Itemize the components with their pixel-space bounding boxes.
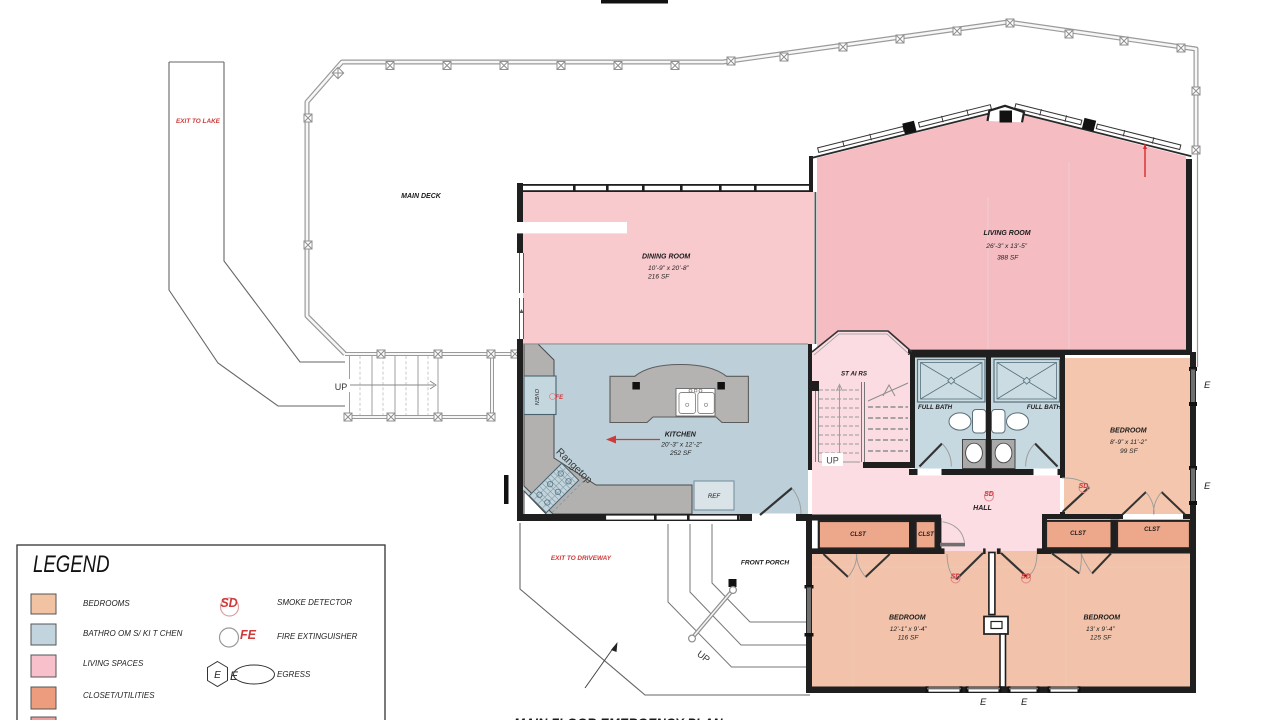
svg-text:BEDROOM: BEDROOM bbox=[1110, 427, 1147, 434]
svg-text:BEDROOM: BEDROOM bbox=[1084, 614, 1121, 621]
svg-text:E: E bbox=[1021, 697, 1028, 708]
svg-text:10’-9” x 20’-8”: 10’-9” x 20’-8” bbox=[648, 265, 689, 272]
svg-text:E: E bbox=[1204, 481, 1211, 492]
svg-text:SD: SD bbox=[951, 574, 961, 581]
svg-text:116 SF: 116 SF bbox=[898, 634, 920, 641]
svg-text:216 SF: 216 SF bbox=[647, 274, 670, 281]
svg-text:LIVING SPACES: LIVING SPACES bbox=[83, 659, 144, 668]
svg-text:E: E bbox=[214, 670, 221, 681]
svg-text:DINING ROOM: DINING ROOM bbox=[642, 254, 690, 261]
svg-text:KITCHEN: KITCHEN bbox=[665, 431, 697, 438]
svg-text:SD: SD bbox=[984, 491, 994, 498]
svg-text:UP: UP bbox=[335, 382, 348, 392]
svg-text:252 SF: 252 SF bbox=[669, 450, 692, 457]
svg-text:BATHRO OM S/ KI T CHEN: BATHRO OM S/ KI T CHEN bbox=[83, 629, 183, 638]
svg-text:HALL: HALL bbox=[973, 505, 992, 512]
svg-text:EGRESS: EGRESS bbox=[277, 670, 311, 679]
svg-text:SMOKE DETECTOR: SMOKE DETECTOR bbox=[277, 598, 352, 607]
svg-text:CLST: CLST bbox=[1070, 531, 1087, 537]
svg-text:FRONT PORCH: FRONT PORCH bbox=[741, 560, 790, 567]
svg-text:CLOSET/UTILITIES: CLOSET/UTILITIES bbox=[83, 691, 155, 700]
svg-text:FULL BATH: FULL BATH bbox=[918, 404, 953, 411]
svg-text:E: E bbox=[980, 697, 987, 708]
svg-text:OVEN: OVEN bbox=[533, 389, 539, 406]
svg-text:SD: SD bbox=[1079, 483, 1089, 490]
svg-text:CLST: CLST bbox=[918, 532, 935, 538]
svg-text:ST AI RS: ST AI RS bbox=[841, 371, 868, 378]
svg-text:20’-3” x 12’-2”: 20’-3” x 12’-2” bbox=[660, 442, 702, 449]
svg-text:E: E bbox=[1204, 380, 1211, 391]
svg-text:99 SF: 99 SF bbox=[1120, 448, 1139, 455]
svg-text:MAIN FLOOR EMERGENCY PLAN: MAIN FLOOR EMERGENCY PLAN bbox=[514, 716, 723, 720]
svg-text:UP: UP bbox=[826, 456, 839, 466]
svg-text:388 SF: 388 SF bbox=[997, 254, 1019, 261]
svg-text:LEGEND: LEGEND bbox=[33, 549, 110, 577]
svg-text:MAIN DECK: MAIN DECK bbox=[401, 193, 442, 200]
svg-text:EXIT TO LAKE: EXIT TO LAKE bbox=[176, 118, 221, 125]
svg-text:EXIT TO DRIVEWAY: EXIT TO DRIVEWAY bbox=[551, 555, 612, 562]
svg-text:SD: SD bbox=[220, 596, 237, 610]
svg-text:CLST: CLST bbox=[850, 532, 867, 538]
svg-text:REF: REF bbox=[708, 493, 722, 500]
svg-text:FIRE EXTINGUISHER: FIRE EXTINGUISHER bbox=[277, 632, 358, 641]
svg-text:SD: SD bbox=[1021, 574, 1031, 581]
svg-text:CLST: CLST bbox=[1144, 527, 1161, 533]
svg-text:BEDROOMS: BEDROOMS bbox=[83, 599, 130, 608]
svg-text:125 SF: 125 SF bbox=[1090, 634, 1112, 641]
svg-text:FE: FE bbox=[240, 628, 257, 642]
svg-text:13’ x 9’-4”: 13’ x 9’-4” bbox=[1086, 626, 1115, 633]
svg-text:26’-3” x 13’-5”: 26’-3” x 13’-5” bbox=[985, 243, 1027, 250]
svg-text:12’-1” x 9’-4”: 12’-1” x 9’-4” bbox=[890, 626, 928, 633]
svg-text:LIVING ROOM: LIVING ROOM bbox=[984, 230, 1031, 237]
svg-text:8’-9” x 11’-2”: 8’-9” x 11’-2” bbox=[1110, 439, 1147, 446]
svg-text:FULL BATH: FULL BATH bbox=[1027, 404, 1062, 411]
svg-text:FE: FE bbox=[556, 395, 565, 401]
svg-text:BEDROOM: BEDROOM bbox=[889, 614, 926, 621]
